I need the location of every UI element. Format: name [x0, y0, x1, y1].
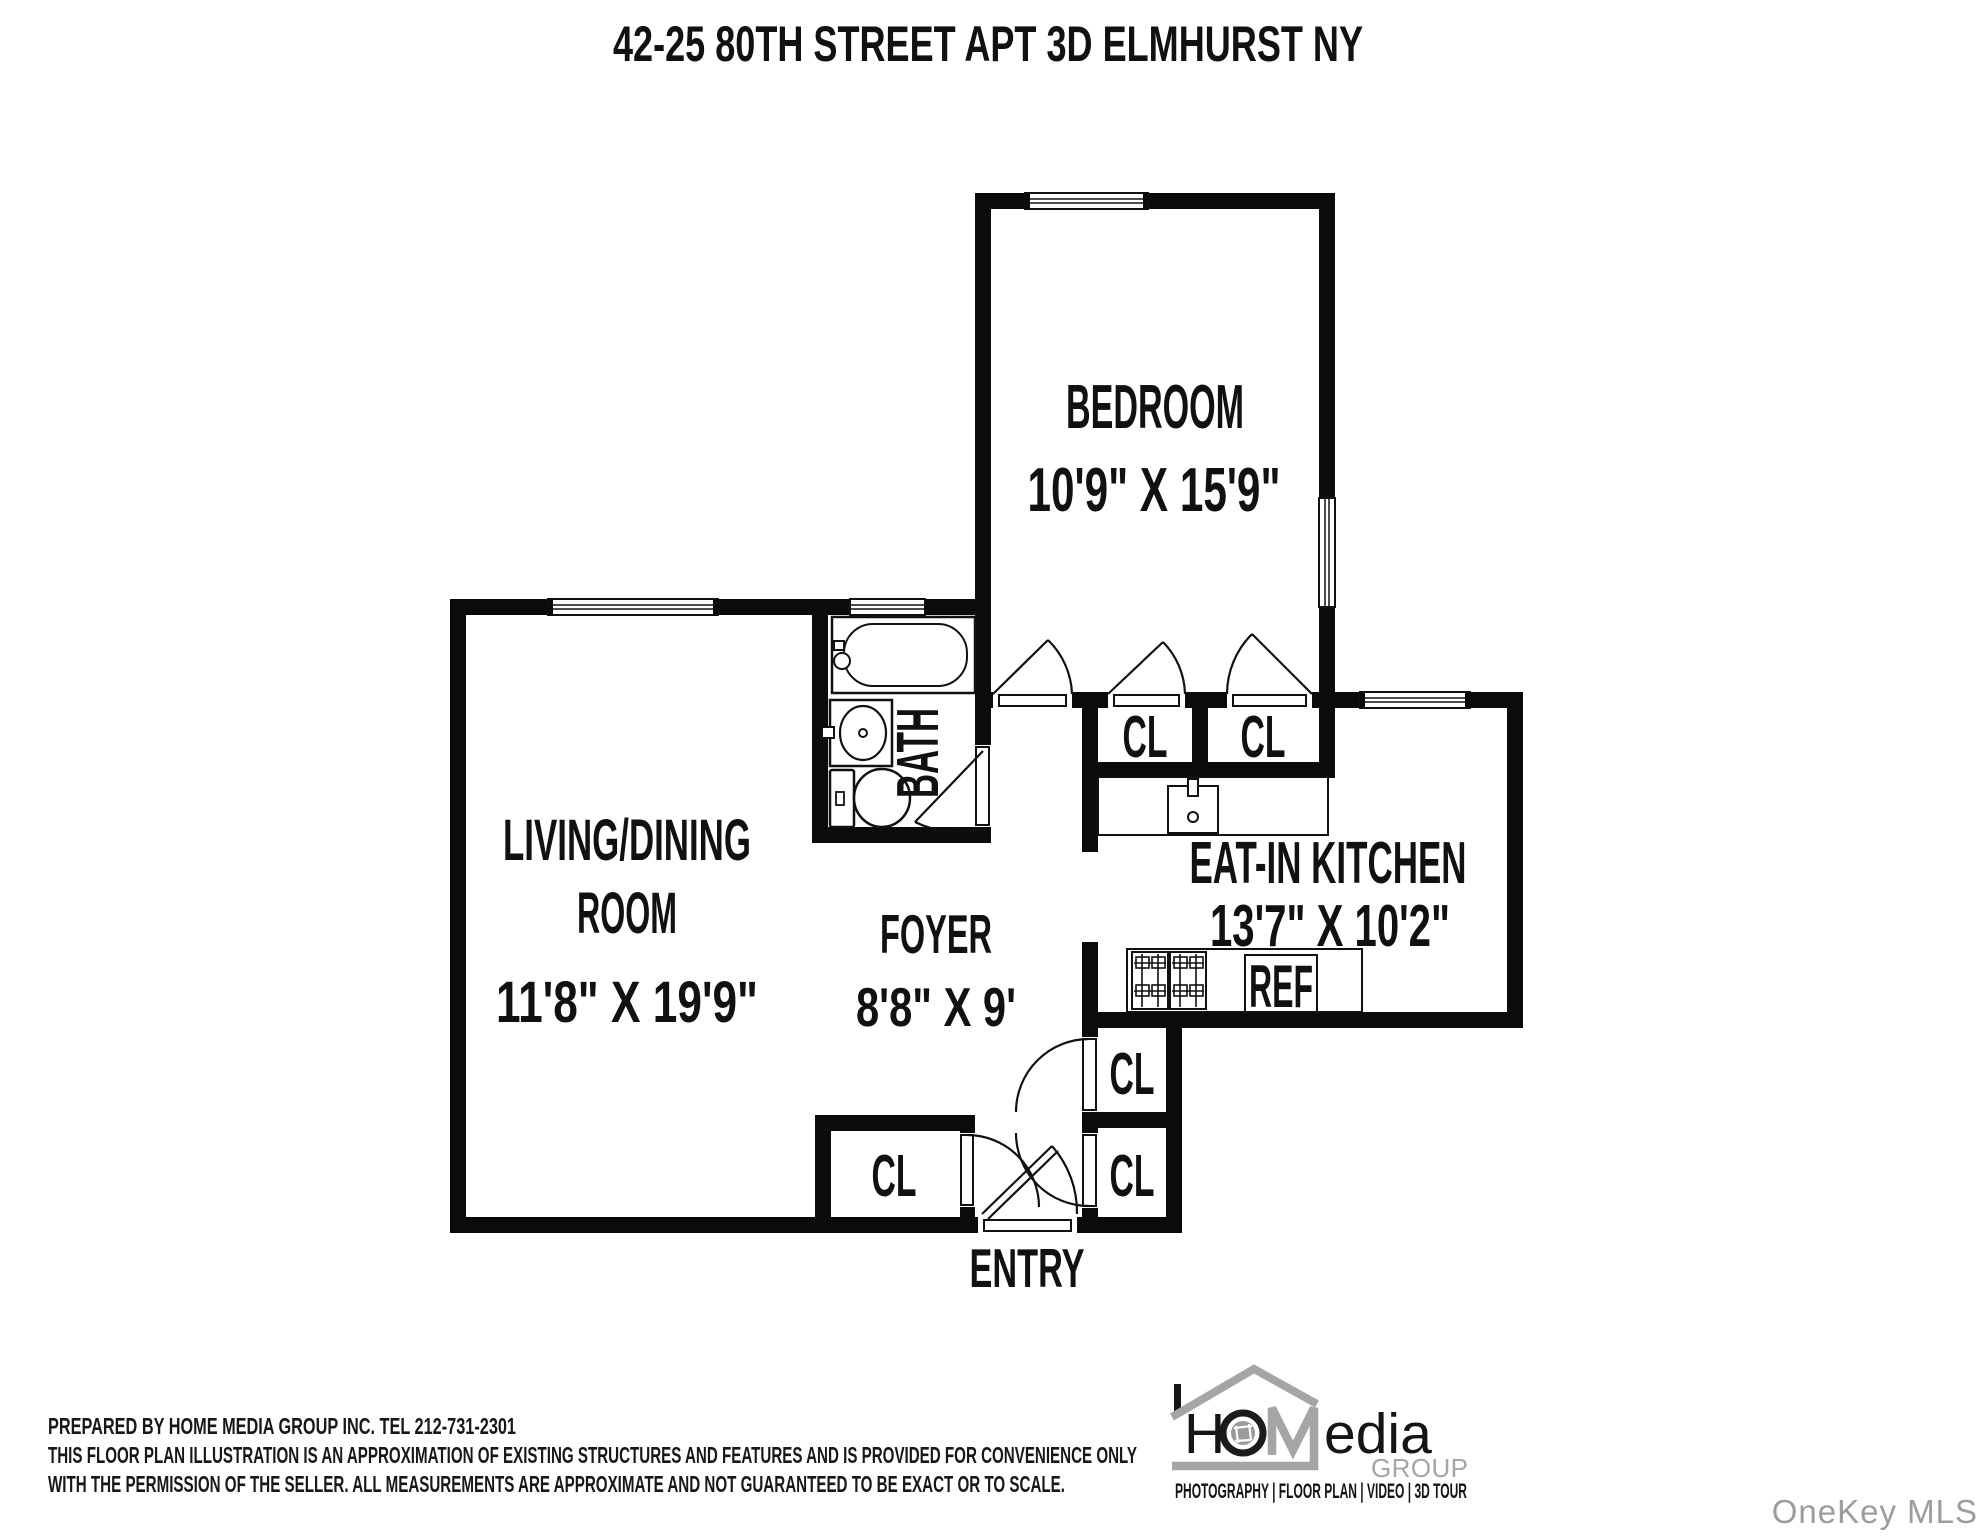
closet-label: CL	[1110, 1041, 1155, 1107]
logo-text-h: H	[1184, 1402, 1225, 1466]
stove-icon	[1132, 952, 1206, 1009]
window-icon	[1319, 498, 1335, 607]
foyer-dimensions: 8'8" X 9'	[856, 976, 1016, 1038]
living-room-label-line1: LIVING/DINING	[503, 808, 751, 873]
disclaimer-line1: THIS FLOOR PLAN ILLUSTRATION IS AN APPRO…	[48, 1442, 1137, 1468]
closet-label: CL	[1123, 704, 1168, 770]
door-swing-icon	[993, 640, 1072, 708]
entry-door-swing-icon	[978, 1146, 1077, 1233]
living-room-label-line2: ROOM	[577, 881, 677, 946]
page-title: 42-25 80TH STREET APT 3D ELMHURST NY	[613, 16, 1363, 72]
bathtub-icon	[832, 617, 975, 693]
floor-plan-page: 42-25 80TH STREET APT 3D ELMHURST NY	[0, 0, 1988, 1536]
closet-label: CL	[872, 1143, 917, 1209]
floor-plan-svg: 42-25 80TH STREET APT 3D ELMHURST NY	[0, 0, 1988, 1536]
logo-services-text: PHOTOGRAPHY | FLOOR PLAN | VIDEO | 3D TO…	[1175, 1480, 1467, 1503]
window-icon	[850, 599, 925, 615]
prepared-by-text: PREPARED BY HOME MEDIA GROUP INC. TEL 21…	[48, 1413, 516, 1439]
bath-sink-icon	[822, 700, 892, 766]
camera-aperture-icon	[1223, 1413, 1263, 1453]
logo-text-group: GROUP	[1371, 1453, 1468, 1483]
door-swing-icon	[1227, 634, 1312, 708]
window-icon	[1360, 692, 1470, 708]
footer-disclaimer: PREPARED BY HOME MEDIA GROUP INC. TEL 21…	[48, 1413, 1137, 1497]
door-swing-icon	[1108, 642, 1185, 708]
kitchen-dimensions: 13'7" X 10'2"	[1210, 893, 1450, 959]
bath-label: BATH	[885, 708, 951, 798]
onekey-mls-watermark: OneKey MLS	[1772, 1493, 1978, 1530]
foyer-label: FOYER	[880, 903, 992, 965]
homedia-logo: H edia GROUP PHOTOGRAPHY | FLOOR PLAN | …	[1172, 1369, 1468, 1503]
doorway-opening	[1082, 852, 1098, 942]
entry-label: ENTRY	[970, 1237, 1085, 1299]
kitchen-sink-icon	[1168, 779, 1218, 833]
living-room-dimensions: 11'8" X 19'9"	[496, 970, 758, 1035]
door-swing-icon	[1016, 1037, 1098, 1112]
closet-label: CL	[1241, 704, 1286, 770]
kitchen-label: EAT-IN KITCHEN	[1190, 830, 1467, 896]
walls-group	[450, 193, 1523, 1233]
refrigerator-label: REF	[1249, 953, 1313, 1020]
window-icon	[1025, 193, 1148, 209]
bedroom-dimensions: 10'9" X 15'9"	[1028, 456, 1281, 525]
closet-label: CL	[1110, 1143, 1155, 1209]
window-icon	[548, 599, 718, 615]
bedroom-label: BEDROOM	[1066, 373, 1244, 442]
disclaimer-line2: WITH THE PERMISSION OF THE SELLER. ALL M…	[48, 1471, 1065, 1497]
